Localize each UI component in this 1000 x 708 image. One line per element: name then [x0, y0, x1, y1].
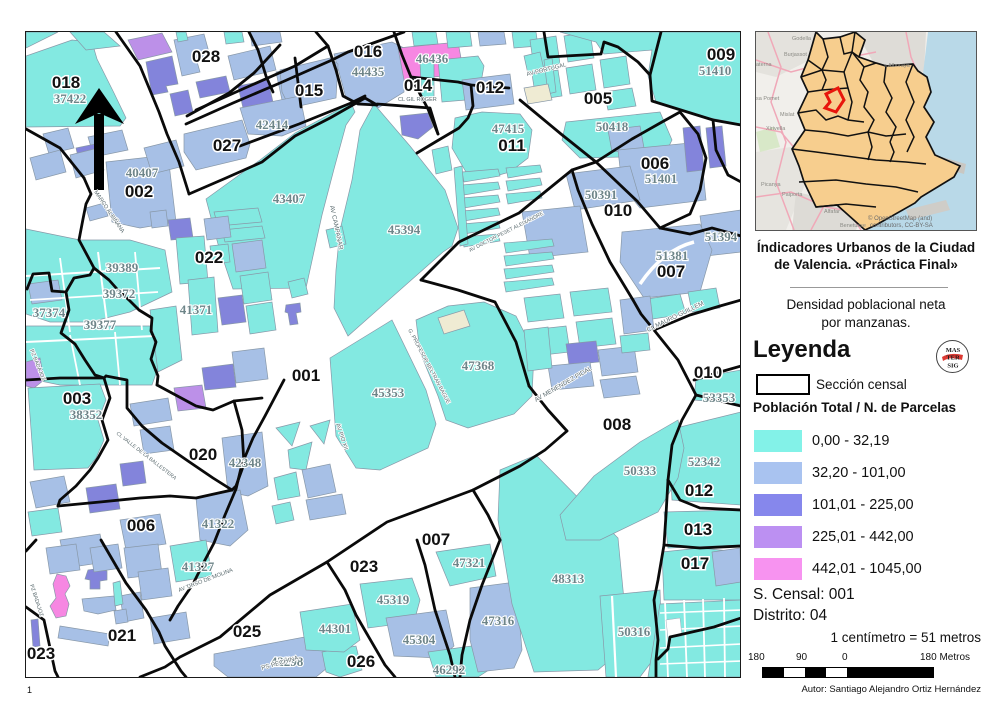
svg-text:41322: 41322: [202, 516, 235, 531]
svg-text:027: 027: [213, 136, 241, 155]
svg-text:47316: 47316: [482, 613, 515, 628]
svg-text:45394: 45394: [388, 222, 421, 237]
svg-text:43407: 43407: [273, 191, 306, 206]
svg-text:012: 012: [476, 78, 504, 97]
svg-text:Benetusse: Benetusse: [840, 223, 866, 229]
svg-text:41371: 41371: [180, 302, 213, 317]
svg-text:021: 021: [108, 626, 136, 645]
svg-text:Godella: Godella: [792, 36, 812, 42]
svg-text:009: 009: [707, 45, 735, 64]
svg-text:Mislat: Mislat: [780, 112, 795, 118]
svg-text:46436: 46436: [416, 51, 449, 66]
svg-text:40407: 40407: [126, 165, 159, 180]
svg-text:023: 023: [27, 644, 55, 663]
svg-text:MAS: MAS: [946, 347, 961, 354]
svg-text:51410: 51410: [699, 63, 732, 78]
svg-text:008: 008: [603, 415, 631, 434]
svg-text:46292: 46292: [433, 662, 466, 677]
svg-text:39389: 39389: [106, 260, 139, 275]
svg-text:50316: 50316: [618, 624, 651, 639]
svg-text:50418: 50418: [596, 119, 629, 134]
svg-text:aterna: aterna: [756, 62, 773, 68]
svg-text:003: 003: [63, 389, 91, 408]
svg-text:sa Pomet: sa Pomet: [756, 96, 780, 102]
svg-text:Xirivella: Xirivella: [766, 126, 786, 132]
svg-text:007: 007: [422, 530, 450, 549]
svg-text:020: 020: [189, 445, 217, 464]
svg-text:45353: 45353: [372, 385, 405, 400]
svg-text:53353: 53353: [703, 390, 736, 405]
svg-text:023: 023: [350, 557, 378, 576]
svg-text:014: 014: [404, 76, 433, 95]
svg-text:015: 015: [295, 81, 323, 100]
svg-text:SIG: SIG: [947, 363, 958, 370]
svg-text:018: 018: [52, 73, 80, 92]
svg-text:48313: 48313: [552, 571, 585, 586]
svg-text:47368: 47368: [462, 358, 495, 373]
svg-text:44435: 44435: [352, 64, 385, 79]
svg-text:025: 025: [233, 622, 261, 641]
svg-text:42414: 42414: [256, 117, 289, 132]
svg-text:51401: 51401: [645, 171, 678, 186]
svg-text:010: 010: [694, 363, 722, 382]
svg-text:012: 012: [685, 481, 713, 500]
svg-text:39377: 39377: [84, 317, 117, 332]
svg-text:002: 002: [125, 182, 153, 201]
svg-text:45304: 45304: [403, 632, 436, 647]
svg-text:42348: 42348: [229, 455, 262, 470]
svg-text:028: 028: [192, 47, 220, 66]
svg-text:Picanya: Picanya: [761, 182, 782, 188]
svg-text:37374: 37374: [33, 305, 66, 320]
svg-text:Paiporta: Paiporta: [782, 192, 803, 198]
svg-text:51381: 51381: [656, 248, 689, 263]
svg-text:022: 022: [195, 248, 223, 267]
svg-text:50391: 50391: [585, 187, 618, 202]
svg-text:38352: 38352: [70, 407, 103, 422]
svg-text:016: 016: [354, 42, 382, 61]
svg-text:52342: 52342: [688, 454, 721, 469]
svg-text:005: 005: [584, 89, 612, 108]
svg-text:017: 017: [681, 554, 709, 573]
svg-text:45319: 45319: [377, 592, 410, 607]
svg-text:s Alboraya: s Alboraya: [884, 63, 911, 69]
svg-text:Burjassot: Burjassot: [784, 52, 807, 58]
svg-text:37422: 37422: [54, 91, 87, 106]
svg-text:50333: 50333: [624, 463, 657, 478]
svg-text:47415: 47415: [492, 121, 525, 136]
svg-text:001: 001: [292, 366, 320, 385]
svg-text:CL GIL ROGER: CL GIL ROGER: [398, 97, 437, 103]
svg-text:51394: 51394: [705, 229, 738, 244]
svg-text:011: 011: [498, 136, 525, 155]
svg-text:007: 007: [657, 262, 685, 281]
svg-text:44301: 44301: [319, 621, 352, 636]
svg-text:© OpenStreetMap (and): © OpenStreetMap (and): [868, 215, 932, 222]
svg-text:47321: 47321: [453, 555, 486, 570]
svg-text:006: 006: [127, 516, 155, 535]
svg-text:026: 026: [347, 652, 375, 671]
svg-text:41327: 41327: [182, 559, 215, 574]
svg-text:39372: 39372: [103, 286, 136, 301]
svg-text:013: 013: [684, 520, 712, 539]
svg-text:TER: TER: [946, 355, 960, 362]
svg-text:Alfafar: Alfafar: [824, 209, 840, 215]
svg-text:contributors, CC-BY-SA: contributors, CC-BY-SA: [870, 223, 933, 229]
svg-text:010: 010: [604, 201, 632, 220]
